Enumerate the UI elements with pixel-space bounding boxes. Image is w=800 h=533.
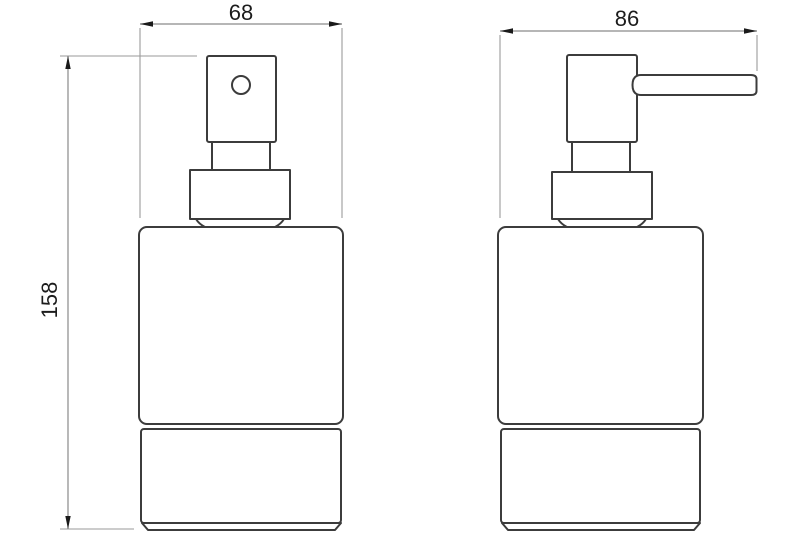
side-view	[498, 55, 757, 530]
front-body	[139, 227, 343, 424]
side-body	[498, 227, 703, 424]
side-pump-head	[567, 55, 637, 142]
height-label: 158	[37, 282, 62, 319]
side-base	[501, 429, 700, 523]
front-base	[141, 429, 341, 523]
height-arrow-top	[65, 56, 70, 69]
side-width-arrow-left	[500, 28, 513, 33]
front-pump-stem	[212, 142, 270, 172]
technical-drawing: 68 86 158	[0, 0, 800, 533]
front-width-arrow-left	[140, 21, 153, 26]
side-base-rim	[502, 523, 700, 530]
side-collar-taper-left	[558, 219, 567, 227]
front-pump-head	[207, 56, 276, 142]
side-width-arrow-right	[744, 28, 757, 33]
front-collar-taper-left	[196, 219, 205, 227]
side-pump-stem	[572, 142, 630, 172]
front-view	[139, 56, 343, 530]
side-spout	[633, 75, 757, 95]
height-arrow-bottom	[65, 516, 70, 529]
front-collar-taper-right	[275, 219, 284, 227]
front-width-label: 68	[229, 0, 253, 25]
side-width-label: 86	[615, 6, 639, 31]
front-pump-collar	[190, 170, 290, 219]
drawing-svg: 68 86 158	[0, 0, 800, 533]
front-base-rim	[142, 523, 341, 530]
side-collar-taper-right	[637, 219, 646, 227]
front-width-arrow-right	[329, 21, 342, 26]
side-pump-collar	[552, 172, 652, 219]
